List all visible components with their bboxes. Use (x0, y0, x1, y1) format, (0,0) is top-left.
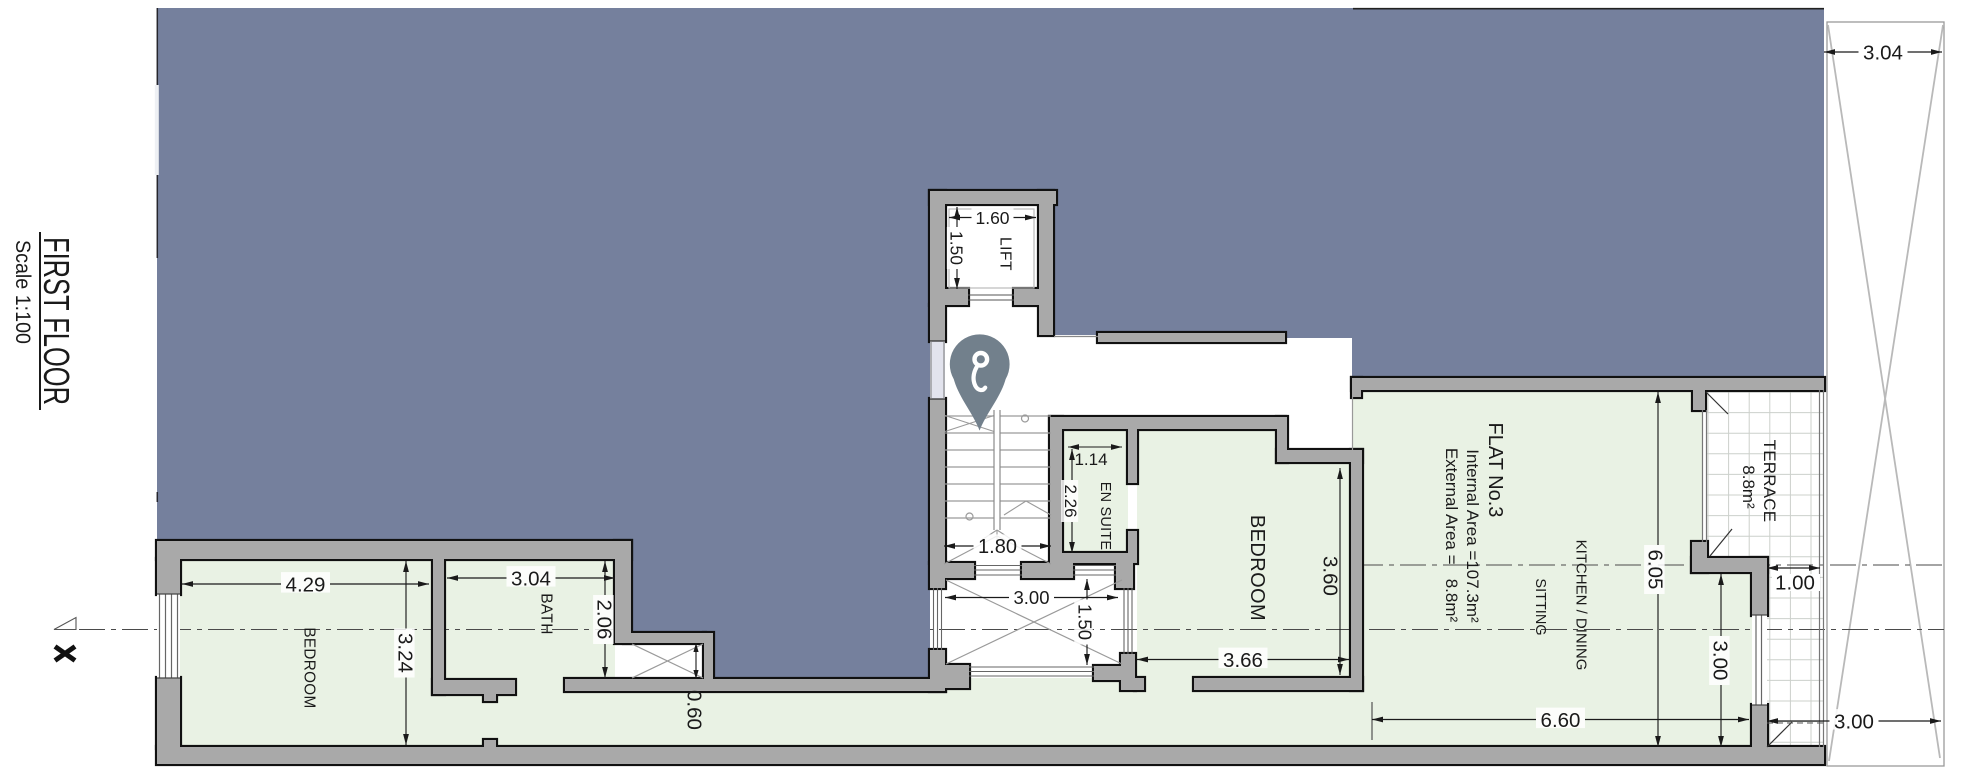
svg-text:3.00: 3.00 (1709, 641, 1732, 681)
svg-text:3.00: 3.00 (1834, 710, 1874, 733)
svg-text:3.66: 3.66 (1223, 649, 1263, 672)
svg-text:Scale 1:100: Scale 1:100 (11, 240, 34, 344)
svg-text:2.06: 2.06 (593, 600, 616, 640)
svg-text:BEDROOM: BEDROOM (300, 627, 317, 708)
svg-text:3.04: 3.04 (511, 567, 551, 590)
svg-text:External Area = 8.8m²: External Area = 8.8m² (1442, 448, 1461, 623)
svg-text:0.60: 0.60 (683, 690, 706, 730)
svg-text:8.8m²: 8.8m² (1739, 465, 1758, 509)
svg-text:SITTING: SITTING (1532, 578, 1548, 635)
svg-text:3.60: 3.60 (1319, 556, 1342, 596)
svg-text:FIRST FLOOR: FIRST FLOOR (36, 237, 77, 405)
svg-text:1.14: 1.14 (1074, 450, 1107, 469)
svg-text:6.60: 6.60 (1541, 709, 1581, 732)
svg-text:1.50: 1.50 (947, 231, 967, 265)
svg-text:LIFT: LIFT (996, 237, 1013, 271)
svg-text:Internal Area =107.3m²: Internal Area =107.3m² (1463, 449, 1482, 623)
svg-text:BEDROOM: BEDROOM (1246, 515, 1268, 621)
svg-text:4.29: 4.29 (286, 573, 326, 596)
svg-text:3.00: 3.00 (1013, 587, 1049, 608)
svg-text:1.00: 1.00 (1775, 571, 1815, 594)
svg-text:6.05: 6.05 (1644, 550, 1667, 590)
svg-text:FLAT No.3: FLAT No.3 (1484, 423, 1506, 518)
svg-text:TERRACE: TERRACE (1760, 440, 1779, 523)
svg-text:EN SUITE: EN SUITE (1097, 482, 1113, 551)
svg-text:KITCHEN / DINING: KITCHEN / DINING (1573, 540, 1590, 671)
svg-text:1.80: 1.80 (978, 536, 1017, 558)
svg-text:3.24: 3.24 (394, 633, 417, 673)
svg-text:1.60: 1.60 (975, 208, 1009, 228)
svg-text:3.04: 3.04 (1863, 41, 1903, 64)
svg-text:BATH: BATH (537, 593, 554, 634)
svg-text:2.26: 2.26 (1061, 484, 1080, 517)
svg-text:1.50: 1.50 (1074, 604, 1095, 640)
